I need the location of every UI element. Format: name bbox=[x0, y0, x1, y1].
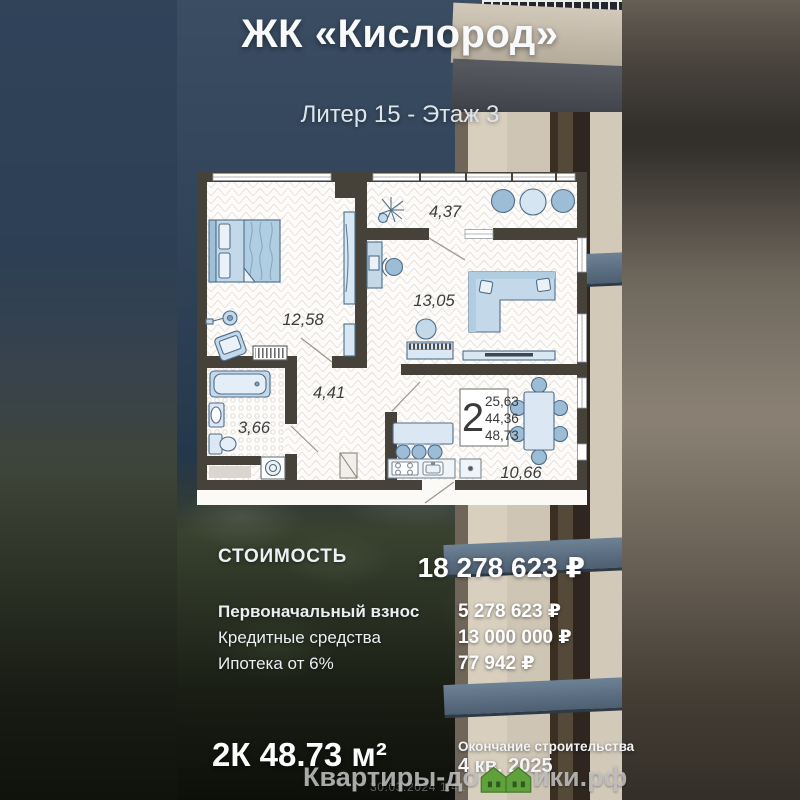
furniture-pouf bbox=[416, 319, 436, 339]
finance-row: Первоначальный взнос 5 278 623 ₽ bbox=[218, 600, 593, 624]
floor-plan: 2 25,63 44,36 48,73 12,58 4,37 13,05 4,4… bbox=[197, 172, 587, 505]
total-price: 18 278 623 ₽ bbox=[418, 551, 585, 584]
watermark-prefix: Квартиры-до bbox=[303, 762, 479, 793]
credit-funds-value: 13 000 000 ₽ bbox=[458, 626, 572, 649]
furniture-tv-sideboard bbox=[463, 351, 555, 360]
finance-row: Кредитные средства 13 000 000 ₽ bbox=[218, 626, 593, 650]
area-stats-box: 2 25,63 44,36 48,73 bbox=[460, 389, 519, 446]
furniture-balcony-chairs bbox=[492, 189, 575, 215]
site-watermark: Квартиры-до ики.рф bbox=[303, 762, 627, 793]
furniture-hall-cabinet bbox=[340, 453, 357, 478]
complex-title: ЖК «Кислород» bbox=[0, 12, 800, 57]
furniture-washer bbox=[261, 457, 285, 479]
living-area: 25,63 bbox=[485, 394, 519, 409]
room-area-bedroom: 12,58 bbox=[282, 311, 324, 329]
mortgage-value: 77 942 ₽ bbox=[458, 652, 535, 675]
furniture-bed bbox=[209, 220, 280, 282]
room-area-kitchen: 10,66 bbox=[500, 464, 542, 482]
down-payment-label: Первоначальный взнос bbox=[218, 602, 458, 622]
furniture-sink bbox=[209, 403, 224, 427]
watermark-suffix: ики.рф bbox=[533, 762, 627, 793]
room-area-living: 13,05 bbox=[413, 292, 455, 310]
house-logo-icon bbox=[480, 765, 532, 793]
listing-flyer: ЖК «Кислород» Литер 15 - Этаж 3 bbox=[0, 0, 800, 800]
room-area-hall: 4,41 bbox=[313, 384, 345, 402]
furniture-fridge bbox=[460, 459, 481, 478]
completion-label: Окончание строительства bbox=[458, 739, 634, 754]
credit-funds-label: Кредитные средства bbox=[218, 628, 458, 648]
price-section-title: СТОИМОСТЬ bbox=[218, 546, 347, 568]
area-no-balcony: 44,36 bbox=[485, 411, 519, 426]
furniture-wardrobe bbox=[253, 346, 287, 360]
furniture-bathtub bbox=[210, 371, 270, 397]
entry-niche bbox=[209, 466, 251, 478]
rooms-count: 2 bbox=[462, 396, 484, 440]
building-floor-subtitle: Литер 15 - Этаж 3 bbox=[0, 101, 800, 129]
furniture-kitchen-counter bbox=[388, 459, 455, 478]
room-area-bath: 3,66 bbox=[238, 419, 271, 437]
mortgage-label: Ипотека от 6% bbox=[218, 654, 458, 674]
flyer-content: ЖК «Кислород» Литер 15 - Этаж 3 bbox=[0, 0, 800, 800]
total-area: 48,73 bbox=[485, 428, 519, 443]
furniture-tv-unit bbox=[344, 212, 355, 356]
room-area-balcony: 4,37 bbox=[429, 203, 462, 221]
down-payment-value: 5 278 623 ₽ bbox=[458, 600, 561, 623]
furniture-piano bbox=[407, 342, 453, 359]
finance-row: Ипотека от 6% 77 942 ₽ bbox=[218, 652, 593, 676]
